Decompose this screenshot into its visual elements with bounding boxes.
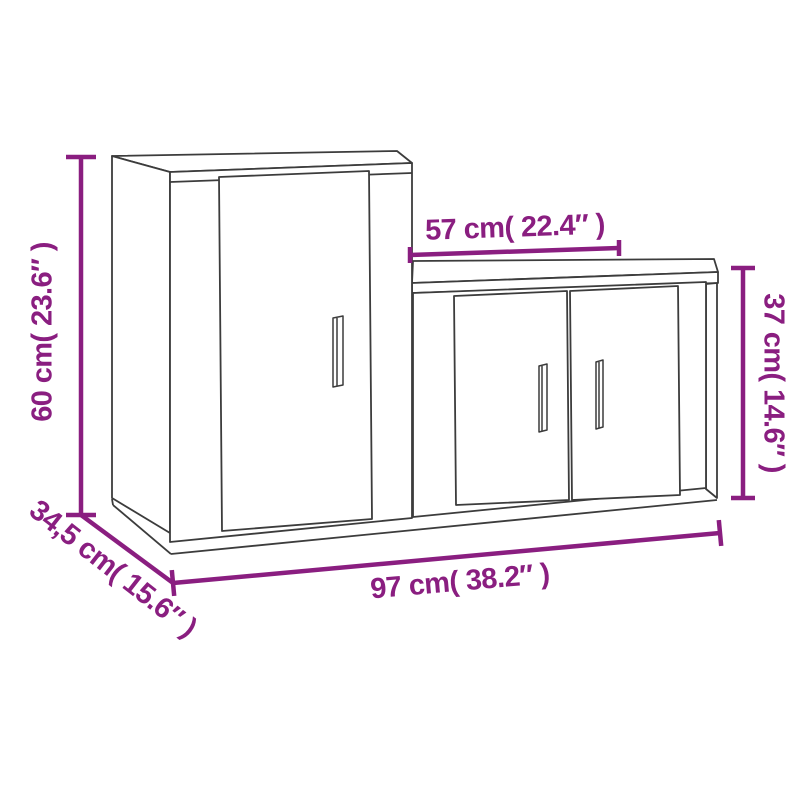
- dimension-tall-height: [66, 157, 96, 515]
- dimension-line: [410, 248, 619, 255]
- low-cabinet-left-handle: [539, 364, 547, 432]
- low-width-label: 57 cm( 22.4″ ): [425, 209, 606, 247]
- tall-height-label: 60 cm( 23.6″ ): [27, 242, 59, 422]
- dimension-cap-right: [719, 520, 721, 546]
- low-cabinet-right-handle: [596, 360, 603, 429]
- diagram-canvas: 60 cm( 23.6″ ) 34,5 cm( 15.6″ ) 97 cm( 3…: [0, 0, 800, 800]
- low-cabinet-right-door: [570, 286, 680, 500]
- dimension-low-height: [731, 268, 755, 498]
- low-cabinet: [412, 259, 718, 517]
- total-width-label: 97 cm( 38.2″ ): [369, 558, 551, 606]
- dimension-cap-left: [172, 570, 174, 596]
- tall-cabinet-side-face: [112, 156, 170, 533]
- low-cabinet-side-face: [706, 283, 717, 498]
- low-height-label: 37 cm( 14.6″ ): [757, 293, 789, 473]
- dimension-diagram: 60 cm( 23.6″ ) 34,5 cm( 15.6″ ) 97 cm( 3…: [0, 0, 800, 800]
- tall-cabinet-handle: [333, 316, 343, 387]
- tall-cabinet-door: [219, 171, 372, 531]
- low-cabinet-left-door: [454, 291, 569, 505]
- plinth-side-bottom-edge: [112, 499, 113, 505]
- tall-cabinet: [112, 151, 412, 554]
